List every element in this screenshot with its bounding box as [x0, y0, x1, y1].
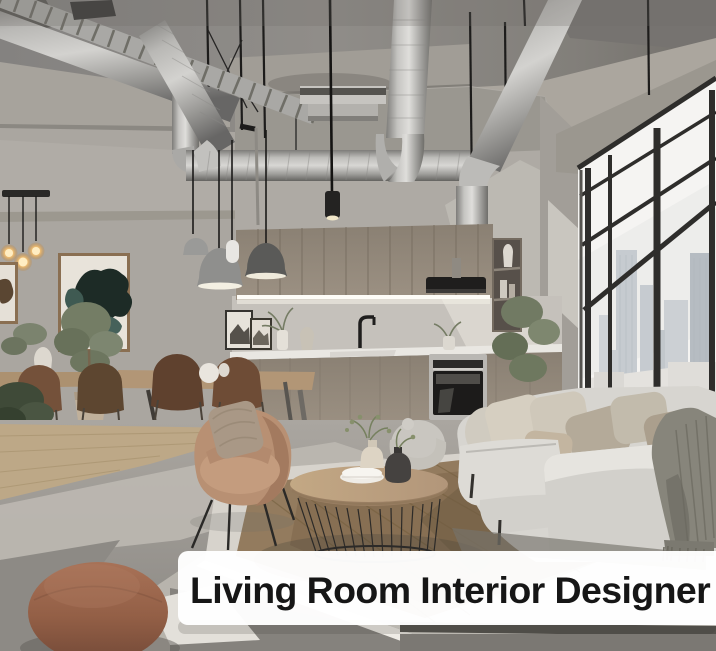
svg-text:Living Room Interior Designer: Living Room Interior Designer [190, 569, 711, 611]
